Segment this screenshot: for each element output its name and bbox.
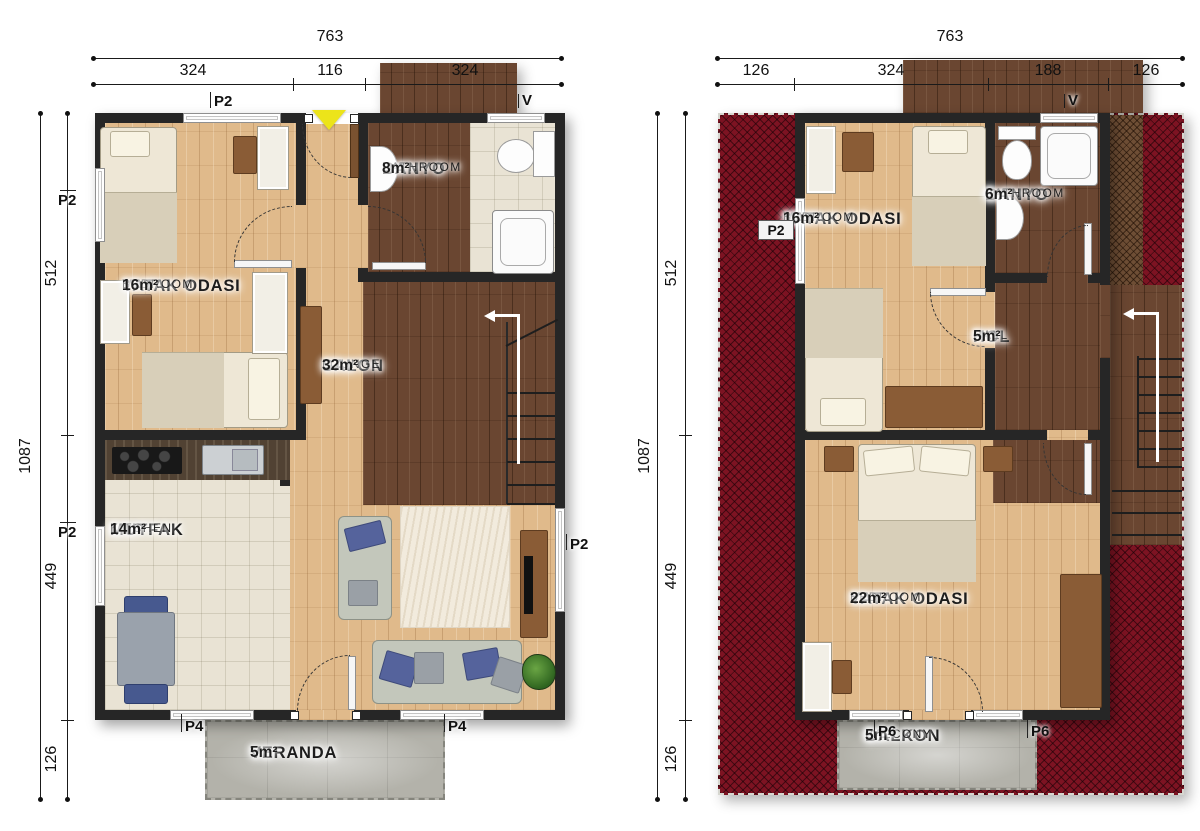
bathroom-door-leaf [372, 262, 426, 270]
pillow [248, 358, 280, 420]
window-v-bathroom [1040, 113, 1098, 123]
room-area: 16m² [122, 277, 158, 295]
pillow [928, 130, 968, 154]
dim-seg: 188 [1013, 62, 1083, 80]
window-v-bathroom [487, 113, 545, 123]
stair-tread [1112, 490, 1182, 492]
stairs-arrow-line [1156, 312, 1159, 462]
room-area: 22m² [850, 590, 886, 608]
chair [832, 660, 852, 694]
blanket [858, 520, 976, 582]
stair-tread [1138, 466, 1182, 468]
stairs-arrow-line [494, 314, 520, 317]
dim-seg: 449 [663, 541, 681, 611]
label-window-p2-top: P2 [214, 93, 232, 110]
label-window-p2-left-1: P2 [58, 192, 76, 209]
dim-seg: 126 [721, 62, 791, 80]
stair-tread [1112, 534, 1182, 536]
label-vent: V [1068, 92, 1078, 109]
label-leader [1027, 720, 1028, 738]
dim-dot [1180, 56, 1185, 61]
dim-dot [91, 56, 96, 61]
label-leader [1064, 94, 1065, 108]
dim-tick [293, 78, 294, 91]
dim-tick [679, 435, 692, 436]
stairs-arrow-head [484, 310, 495, 322]
dim-line [685, 113, 686, 801]
dim-tick [988, 78, 989, 91]
stair-tread [507, 392, 555, 394]
dim-dot [65, 797, 70, 802]
dim-seg: 324 [430, 62, 500, 80]
dining-chair [124, 684, 168, 704]
toilet-bowl [497, 139, 535, 173]
dim-seg: 449 [43, 541, 61, 611]
wall [358, 113, 368, 205]
stair-tread [507, 415, 555, 417]
label-leader [60, 190, 76, 191]
window-p2-right [555, 508, 565, 612]
dim-line [657, 113, 658, 801]
dim-tick [365, 78, 366, 91]
dim-dot [91, 82, 96, 87]
toilet-tank [998, 126, 1036, 140]
tv [524, 556, 533, 614]
room-area: 14m² [110, 521, 146, 539]
floor-plan-canvas: 763 324 116 324 1087 512 449 126 [0, 0, 1200, 831]
dim-seg: 116 [295, 62, 365, 80]
stair-tread [1138, 448, 1182, 450]
stair-tread [1138, 394, 1182, 396]
dining-table [117, 612, 175, 686]
door-jamb [903, 711, 912, 720]
dim-seg: 512 [663, 238, 681, 308]
stair-tread [1138, 358, 1182, 360]
rug [400, 506, 510, 628]
room-area: 5m² [973, 328, 1001, 346]
toilet-bowl [1002, 140, 1032, 180]
dim-seg: 126 [663, 724, 681, 794]
cooktop [112, 447, 182, 474]
stairs-arrow-line [1133, 312, 1159, 315]
desk [802, 642, 832, 712]
stair-tread [1112, 512, 1182, 514]
door-jamb [352, 711, 361, 720]
sink-bowl [232, 449, 258, 471]
dim-line [67, 113, 68, 801]
dim-seg: 324 [158, 62, 228, 80]
dim-dot [715, 82, 720, 87]
stairs-arrow-head [1123, 308, 1134, 320]
pillow [820, 398, 866, 426]
plant [522, 654, 556, 690]
dim-top-total: 763 [295, 28, 365, 46]
stairwell-opening [1100, 285, 1110, 358]
wall [1088, 430, 1110, 440]
pillow [863, 445, 915, 476]
dim-seg: 512 [43, 238, 61, 308]
dim-line [40, 113, 41, 801]
nightstand [983, 446, 1013, 472]
wardrobe [252, 272, 288, 354]
label-window-p2-right: P2 [570, 536, 588, 553]
window-p2-top [183, 113, 281, 123]
label-door-p4-left: P4 [185, 718, 203, 735]
shower-inner [1047, 133, 1091, 179]
dim-seg: 126 [1111, 62, 1181, 80]
label-door-p4-right: P4 [448, 718, 466, 735]
dim-side-total: 1087 [17, 421, 35, 491]
door-jamb [290, 711, 299, 720]
wall [985, 348, 995, 440]
sofa-cushion [348, 580, 378, 606]
dim-dot [655, 111, 660, 116]
dim-dot [683, 797, 688, 802]
label-vent: V [522, 92, 532, 109]
door-jamb [350, 114, 359, 123]
dim-dot [559, 82, 564, 87]
shower-inner [500, 218, 546, 266]
room-area: 6m² [985, 186, 1013, 204]
hall-floor [995, 273, 1100, 430]
dim-seg: 126 [43, 724, 61, 794]
dim-line [93, 84, 563, 85]
veranda-door-opening [296, 710, 354, 720]
label-leader [181, 714, 182, 732]
wall [985, 273, 1047, 283]
room-area: 5m² [250, 744, 278, 762]
dim-tick [794, 78, 795, 91]
label-leader [210, 92, 211, 108]
stair-tread [1138, 376, 1182, 378]
label-leader [518, 94, 519, 108]
dim-seg: 324 [856, 62, 926, 80]
wardrobe [806, 126, 836, 194]
blanket [100, 192, 177, 263]
label-leader [60, 522, 76, 523]
window-p4-bottom-right [400, 710, 484, 720]
stair-tread [1138, 412, 1182, 414]
dim-dot [1180, 82, 1185, 87]
dim-side-total: 1087 [636, 421, 654, 491]
door-jamb [965, 711, 974, 720]
dim-dot [65, 111, 70, 116]
roof-brown-strip [1110, 115, 1143, 285]
dresser [885, 386, 983, 428]
chair [132, 294, 152, 336]
nightstand [824, 446, 854, 472]
pillow [919, 445, 971, 476]
dim-tick [1108, 78, 1109, 91]
window-p4-bottom-left [170, 710, 254, 720]
entry-arrow-icon [312, 110, 346, 130]
dim-dot [559, 56, 564, 61]
label-door-p6-left: P6 [878, 723, 896, 740]
dim-line [93, 58, 563, 59]
dresser [842, 132, 874, 172]
dim-tick [679, 720, 692, 721]
dim-dot [38, 111, 43, 116]
stairwell [1110, 285, 1182, 545]
dim-dot [38, 797, 43, 802]
blanket [142, 352, 224, 428]
dim-dot [683, 111, 688, 116]
dim-line [717, 58, 1184, 59]
window-p2-left-2 [95, 526, 105, 606]
blanket [912, 196, 986, 266]
window-p6-left [849, 710, 903, 720]
toilet-tank [533, 131, 555, 177]
dim-top-total: 763 [915, 28, 985, 46]
room-area: 32m² [322, 357, 358, 375]
stair-tread [507, 503, 555, 505]
pillow [110, 131, 150, 157]
stair-tread [507, 461, 555, 463]
stairs-arrow-line [517, 314, 520, 464]
dim-dot [715, 56, 720, 61]
wardrobe [1060, 574, 1102, 708]
stairs-edge [506, 322, 508, 504]
label-leader [566, 534, 567, 550]
dim-line [717, 84, 1184, 85]
hall-cabinet [300, 306, 322, 404]
dresser [233, 136, 257, 174]
stair-tread [1138, 430, 1182, 432]
label-window-p2-left: P2 [758, 220, 794, 240]
sofa-cushion [414, 652, 444, 684]
stair-tread [507, 484, 555, 486]
room-area: 8m² [382, 160, 410, 178]
label-door-p6-right: P6 [1031, 723, 1049, 740]
wardrobe [257, 126, 289, 190]
dim-dot [655, 797, 660, 802]
label-leader [444, 714, 445, 732]
blanket [805, 288, 883, 358]
dim-tick [61, 435, 74, 436]
label-leader [874, 720, 875, 738]
dim-tick [61, 720, 74, 721]
label-window-p2-left-2: P2 [58, 524, 76, 541]
stair-tread [507, 438, 555, 440]
wall [95, 430, 306, 440]
window-p2-left-1 [95, 168, 105, 242]
